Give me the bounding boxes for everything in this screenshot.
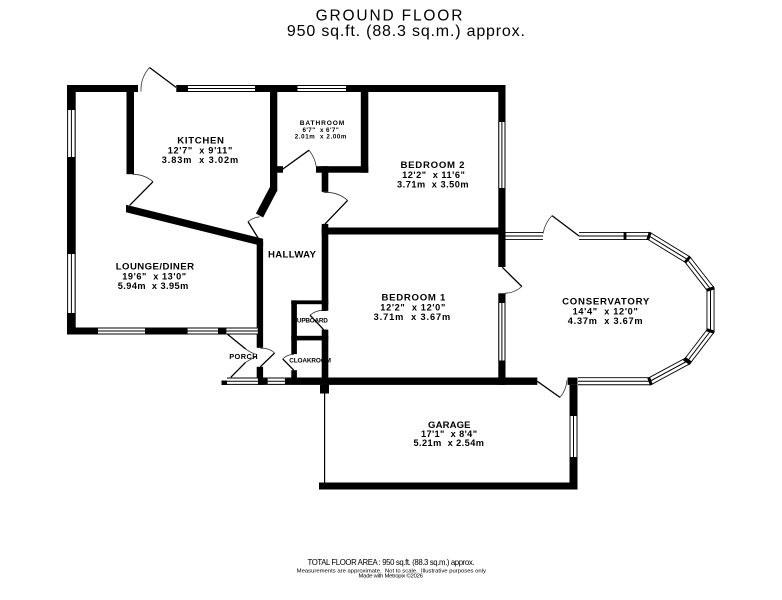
svg-text:14'4" x 12'0": 14'4" x 12'0": [573, 306, 638, 316]
svg-text:CUPBOARD: CUPBOARD: [293, 318, 329, 325]
svg-text:3.71m x 3.67m: 3.71m x 3.67m: [374, 312, 451, 322]
svg-text:Made with Metropix ©2026: Made with Metropix ©2026: [359, 573, 424, 580]
svg-text:TOTAL FLOOR AREA : 950 sq.ft.: TOTAL FLOOR AREA : 950 sq.ft. (88.3 sq.m…: [308, 558, 475, 567]
svg-text:5.21m x 2.54m: 5.21m x 2.54m: [414, 438, 484, 448]
svg-text:950 sq.ft. (88.3 sq.m.) approx: 950 sq.ft. (88.3 sq.m.) approx.: [287, 23, 525, 40]
svg-text:12'2" x 11'6": 12'2" x 11'6": [402, 170, 465, 180]
svg-text:12'2" x 12'0": 12'2" x 12'0": [380, 302, 445, 312]
svg-text:2.01m x 2.00m: 2.01m x 2.00m: [295, 134, 347, 141]
svg-text:3.71m x 3.50m: 3.71m x 3.50m: [397, 180, 469, 190]
svg-text:4.37m x 3.67m: 4.37m x 3.67m: [568, 316, 643, 326]
svg-text:12'7" x 9'11": 12'7" x 9'11": [168, 145, 233, 155]
svg-text:19'6" x 13'0": 19'6" x 13'0": [122, 272, 186, 282]
svg-text:5.94m x 3.95m: 5.94m x 3.95m: [118, 281, 189, 291]
svg-text:CLOAKROOM: CLOAKROOM: [289, 357, 331, 364]
svg-text:BATHROOM: BATHROOM: [300, 120, 345, 127]
svg-text:3.83m x 3.02m: 3.83m x 3.02m: [162, 155, 238, 165]
svg-text:HALLWAY: HALLWAY: [268, 250, 316, 261]
svg-text:PORCH: PORCH: [229, 352, 257, 361]
